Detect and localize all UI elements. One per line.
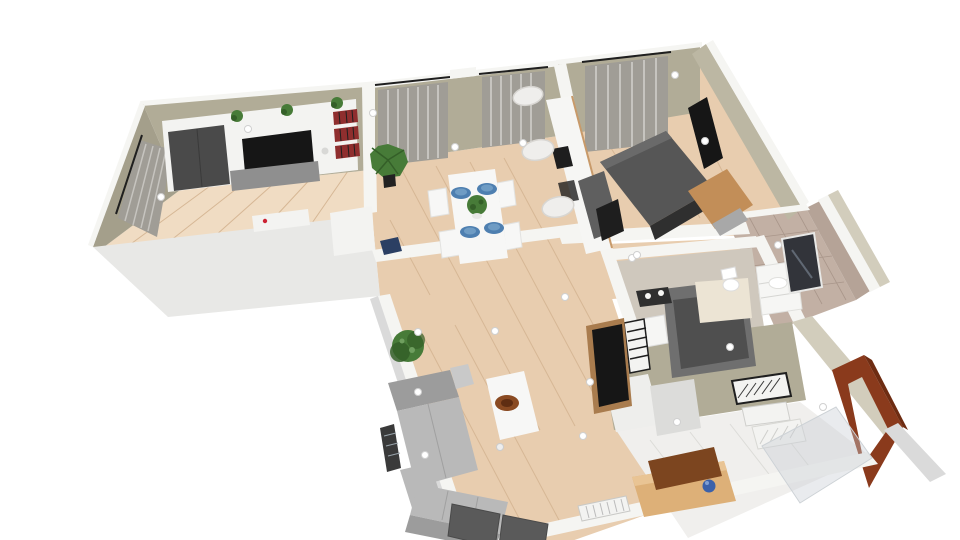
ceiling-light bbox=[672, 72, 679, 79]
coffee-table-leg bbox=[497, 444, 504, 451]
ceiling-light bbox=[727, 344, 734, 351]
office-desk bbox=[330, 206, 375, 256]
ceiling-light bbox=[245, 126, 252, 133]
ceiling-light bbox=[370, 110, 377, 117]
ceiling-light bbox=[422, 452, 429, 459]
brown-bowl-inner bbox=[501, 399, 513, 407]
office-main-pillar bbox=[362, 84, 377, 214]
ceiling-light bbox=[580, 433, 587, 440]
ceiling-light bbox=[674, 419, 681, 426]
ceiling-light bbox=[562, 294, 569, 301]
wc-basin-1 bbox=[645, 293, 651, 299]
ceiling-light bbox=[415, 389, 422, 396]
blue-ball bbox=[703, 480, 716, 493]
ceiling-light bbox=[492, 328, 499, 335]
ceiling-light bbox=[520, 140, 527, 147]
floorplan-render bbox=[0, 0, 960, 540]
ceiling-light bbox=[587, 379, 594, 386]
ceiling-light bbox=[452, 144, 459, 151]
palm-pot bbox=[383, 174, 396, 188]
dresser-logo bbox=[263, 219, 267, 223]
ceiling-light bbox=[158, 194, 165, 201]
wc-door bbox=[650, 379, 701, 436]
floorplan-svg bbox=[0, 0, 960, 540]
outer-shadow-right bbox=[884, 423, 946, 482]
living-left-window bbox=[380, 424, 401, 472]
centerpiece-plant bbox=[467, 195, 487, 215]
ceiling-light bbox=[634, 252, 641, 259]
centerpiece-vase bbox=[472, 213, 482, 219]
bathroom-sink bbox=[769, 278, 787, 289]
blue-ball-highlight bbox=[705, 481, 709, 485]
wc-basin-2 bbox=[658, 290, 664, 296]
ceiling-light bbox=[775, 242, 782, 249]
ceiling-light bbox=[702, 138, 709, 145]
ceiling-light bbox=[820, 404, 827, 411]
ceiling-light bbox=[415, 329, 422, 336]
toilet-bowl bbox=[723, 279, 739, 291]
vase bbox=[322, 148, 329, 155]
